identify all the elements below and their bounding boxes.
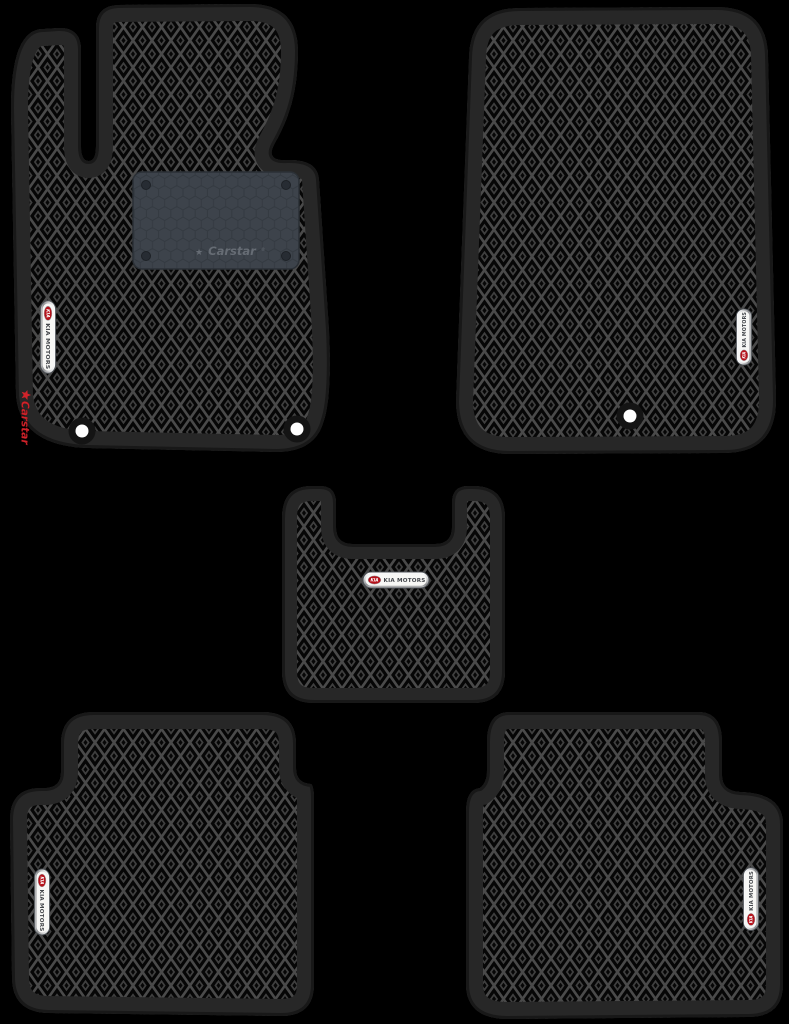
carstar-logo-text: Carstar [19, 401, 31, 445]
heel-pad: ★ Carstar ® [133, 172, 299, 269]
kia-motors-badge-center [363, 572, 429, 588]
carstar-star-icon: ★ [195, 248, 203, 258]
kia-motors-badge-rear-right [743, 868, 758, 931]
heel-pad-rivet [142, 252, 151, 261]
passenger-mat-surface [445, 0, 789, 465]
front-right-passenger-mat [445, 0, 789, 465]
front-left-driver-mat: ★ Carstar ® Carstar [0, 0, 345, 470]
floor-mats-product-photo: KIA KIA MOTORS ★ Carstar ® [0, 0, 789, 1024]
kia-motors-badge-driver [40, 301, 55, 374]
fixing-hole [617, 403, 644, 430]
mats-canvas: KIA KIA MOTORS ★ Carstar ® [0, 0, 789, 1024]
heel-pad-rivet [282, 252, 291, 261]
fixing-hole [69, 418, 96, 445]
kia-motors-badge-passenger [736, 309, 751, 365]
heel-pad-rivet [282, 181, 291, 190]
heel-pad-rivet [142, 181, 151, 190]
fixing-hole [284, 416, 311, 443]
kia-motors-badge-rear-left [34, 869, 49, 935]
